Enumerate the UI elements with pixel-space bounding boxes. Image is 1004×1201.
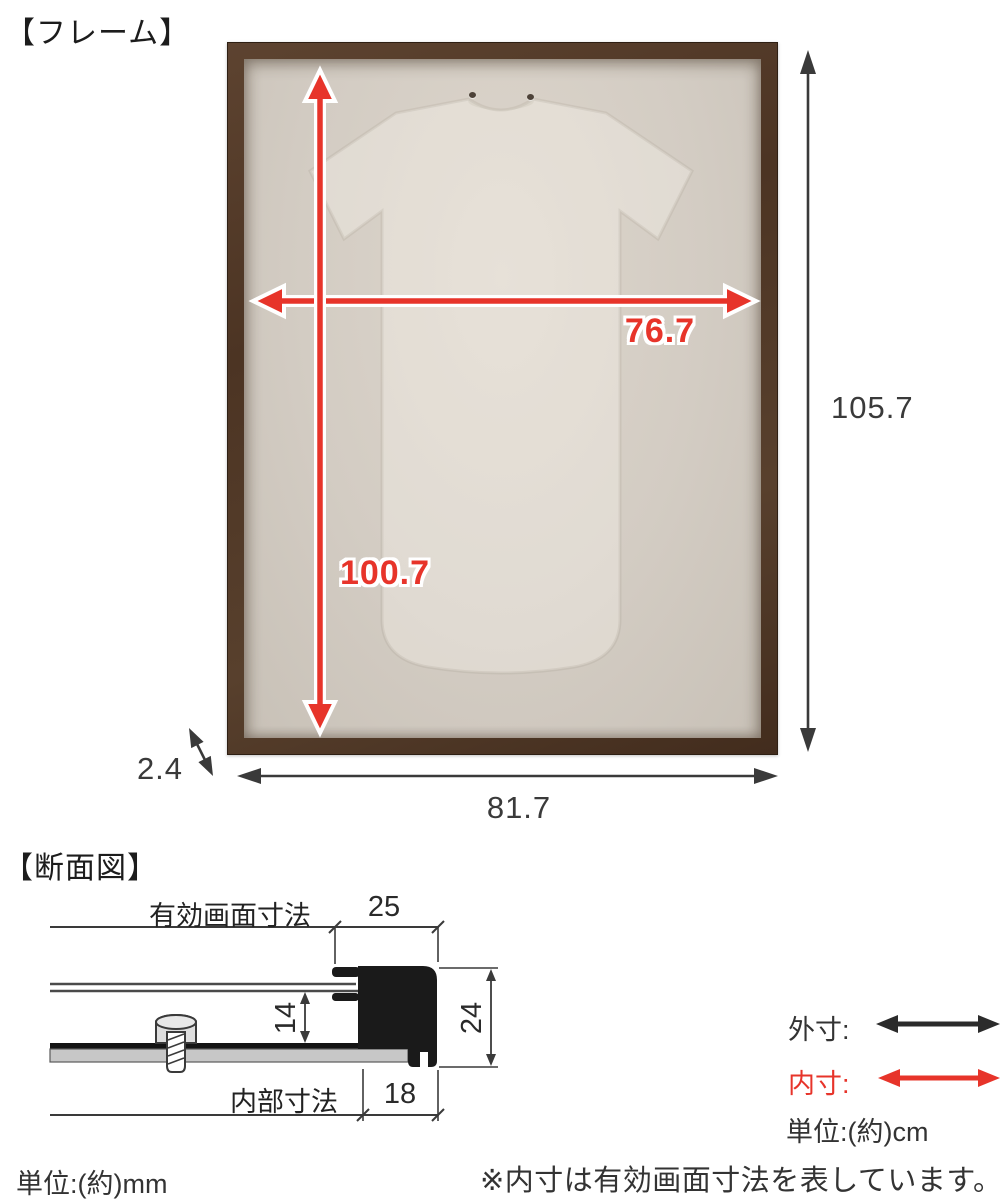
footnote: ※内寸は有効画面寸法を表しています。 <box>480 1157 1003 1199</box>
outer-width-arrow <box>237 768 778 784</box>
inner-height-value: 100.7 <box>315 554 455 593</box>
thickness-arrow <box>189 728 213 776</box>
legend-inner-label: 内寸: <box>788 1062 850 1101</box>
legend-outer-label: 外寸: <box>788 1008 850 1047</box>
effective-screen-label: 有効画面寸法 <box>120 894 340 933</box>
outer-arrow-icon <box>876 1012 1000 1036</box>
unit-mm-note: 単位:(約)mm <box>16 1162 167 1201</box>
internal-dim-label: 内部寸法 <box>184 1080 384 1119</box>
inner-width-value: 76.7 <box>595 312 725 351</box>
bottom-width-value: 18 <box>370 1078 430 1111</box>
outer-height-value: 105.7 <box>831 390 914 426</box>
inner-depth-value: 14 <box>264 994 308 1042</box>
thickness-value: 2.4 <box>131 751 189 787</box>
inner-arrow-icon <box>878 1066 1000 1090</box>
outer-depth-value: 24 <box>450 994 494 1042</box>
outer-height-arrow <box>800 50 816 752</box>
front-width-value: 25 <box>345 891 423 924</box>
legend-unit-cm-note: 単位:(約)cm <box>786 1110 928 1149</box>
outer-width-value: 81.7 <box>469 790 569 826</box>
inner-height-arrow <box>305 70 335 733</box>
screw <box>156 1015 196 1072</box>
